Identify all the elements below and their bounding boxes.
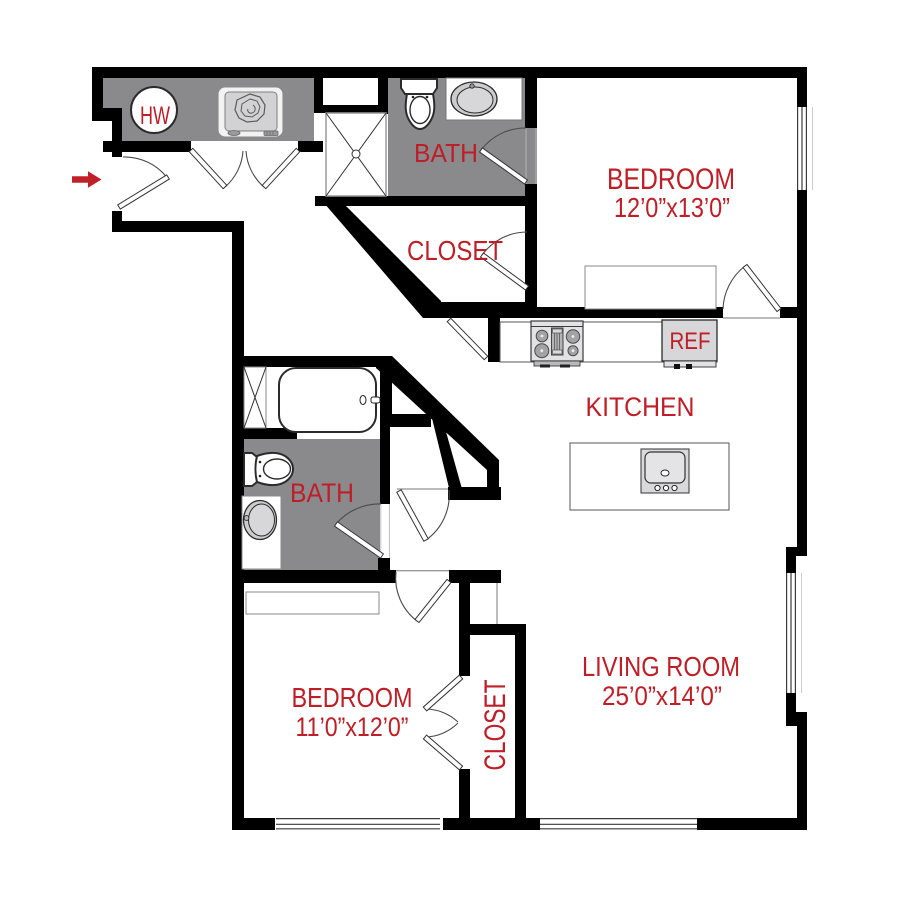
svg-text:LIVING ROOM: LIVING ROOM (582, 651, 740, 682)
svg-text:BATH: BATH (290, 478, 354, 508)
svg-text:25’0”x14’0”: 25’0”x14’0” (602, 681, 722, 711)
svg-text:REF: REF (670, 328, 711, 355)
svg-text:CLOSET: CLOSET (479, 680, 512, 771)
svg-text:BEDROOM: BEDROOM (292, 682, 413, 713)
svg-text:HW: HW (140, 102, 170, 130)
svg-text:CLOSET: CLOSET (407, 235, 503, 266)
svg-text:12’0”x13’0”: 12’0”x13’0” (614, 192, 730, 223)
svg-text:KITCHEN: KITCHEN (586, 392, 695, 422)
svg-text:11’0”x12’0”: 11’0”x12’0” (296, 712, 409, 742)
svg-text:BATH: BATH (414, 138, 478, 168)
